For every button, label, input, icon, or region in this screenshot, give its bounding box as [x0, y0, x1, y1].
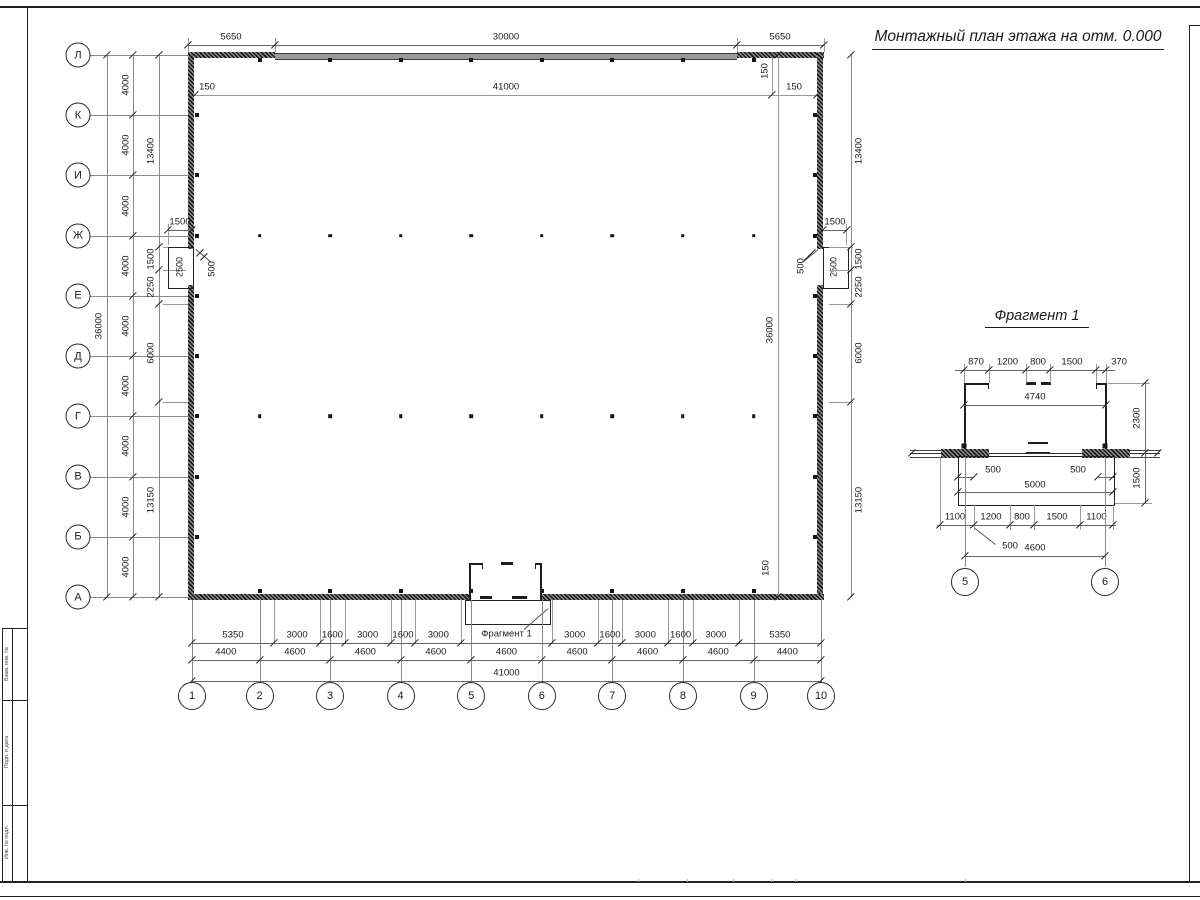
dim-label: 41000: [493, 82, 519, 92]
dim-label: 3000: [287, 630, 308, 640]
dim-label: 4000: [121, 135, 131, 156]
axis-circle: Д: [66, 344, 91, 369]
line: [482, 563, 483, 569]
line: [0, 6, 1200, 8]
dim-label: 2250: [854, 276, 864, 297]
line: [542, 600, 543, 682]
line: [1096, 383, 1097, 389]
dim-label: 1600: [599, 630, 620, 640]
dim-label: 4000: [121, 315, 131, 336]
line: [1010, 505, 1011, 530]
line: [0, 881, 1200, 883]
dim-label: 1500: [1046, 512, 1067, 522]
column-mark: [611, 415, 615, 419]
line: [133, 55, 134, 597]
dim-label: 4000: [121, 376, 131, 397]
dim-label: 1500: [1132, 467, 1142, 488]
column-mark: [258, 234, 262, 238]
axis-circle: К: [66, 103, 91, 128]
dim-label: 1600: [392, 630, 413, 640]
column-mark: [540, 234, 544, 238]
column-mark: [195, 173, 199, 177]
line: [401, 600, 402, 682]
top-wall-mid: [275, 53, 737, 60]
dim-label: 4000: [121, 436, 131, 457]
stamp-cell-label: Подп. и дата: [4, 736, 10, 768]
column-mark: [752, 58, 756, 62]
axis-circle: 4: [387, 682, 415, 710]
line: [964, 405, 1107, 406]
line: [89, 356, 188, 357]
dim-label: 5650: [220, 32, 241, 42]
dim-label: 1600: [670, 630, 691, 640]
column-mark: [813, 414, 817, 418]
line: [345, 600, 346, 644]
column-mark: [469, 415, 473, 419]
line: [2, 628, 27, 629]
dim-label: 3000: [564, 630, 585, 640]
dashed-mark: [1028, 442, 1048, 444]
line: [2, 805, 27, 806]
line: [1189, 25, 1200, 26]
column-mark: [540, 58, 544, 62]
column-mark: [813, 113, 817, 117]
dim-label: 4600: [1024, 543, 1045, 553]
column-mark: [195, 113, 199, 117]
dim-label: 500: [796, 258, 806, 274]
dim-label: 4600: [567, 647, 588, 657]
dim-label: 41000: [493, 668, 519, 678]
column-mark: [681, 58, 685, 62]
dashed-mark: [1026, 382, 1036, 385]
line: [687, 879, 688, 882]
column-mark: [258, 58, 262, 62]
line: [683, 600, 684, 682]
axis-circle: 7: [598, 682, 626, 710]
line: [795, 879, 796, 882]
line: [1145, 383, 1146, 503]
dim-label: 150: [760, 63, 770, 79]
dim-label: 1200: [980, 512, 1001, 522]
dim-label: 2250: [146, 276, 156, 297]
column-mark: [328, 415, 332, 419]
fragment-title: Фрагмент 1: [985, 308, 1089, 328]
axis-circle: 3: [316, 682, 344, 710]
dim-label: 13150: [854, 486, 864, 512]
axis-circle: 5: [457, 682, 485, 710]
column-mark: [681, 415, 685, 419]
dim-label: 13150: [146, 486, 156, 512]
line: [330, 600, 331, 682]
column-mark: [813, 294, 817, 298]
dim-label: 4600: [355, 647, 376, 657]
column-mark: [399, 415, 403, 419]
dim-label: 1500: [169, 217, 190, 227]
dim-label: 1600: [322, 630, 343, 640]
line: [535, 563, 536, 569]
dashed-mark: [501, 562, 513, 565]
dim-label: 1200: [997, 357, 1018, 367]
column-mark: [195, 294, 199, 298]
axis-circle: 9: [740, 682, 768, 710]
dim-label: 800: [1014, 512, 1030, 522]
line: [1096, 383, 1107, 385]
dim-label: 1100: [1086, 512, 1106, 522]
line: [1105, 383, 1107, 453]
line: [778, 55, 779, 597]
dim-label: 500: [1002, 541, 1018, 551]
dim-label: 150: [786, 82, 802, 92]
line: [638, 879, 639, 882]
dim-label: 4600: [496, 647, 517, 657]
line: [851, 55, 852, 597]
dim-label: 13400: [854, 138, 864, 164]
dim-tick: [847, 593, 855, 601]
line: [937, 525, 1116, 526]
column-mark: [961, 444, 966, 449]
column-mark: [399, 234, 403, 238]
axis-circle: 8: [669, 682, 697, 710]
line: [733, 879, 734, 882]
line: [163, 304, 189, 305]
line: [965, 556, 1105, 557]
dim-label: 870: [968, 357, 984, 367]
line: [195, 95, 817, 96]
line: [2, 700, 27, 701]
column-mark: [1102, 444, 1107, 449]
column-mark: [611, 234, 615, 238]
line: [552, 600, 553, 644]
line: [89, 236, 188, 237]
column-mark: [681, 234, 685, 238]
dim-label: 30000: [493, 32, 519, 42]
column-mark: [399, 58, 403, 62]
axis-circle: А: [66, 585, 91, 610]
line: [188, 45, 824, 46]
line: [693, 600, 694, 644]
dim-label: 2500: [176, 257, 185, 277]
line: [0, 896, 1200, 898]
dim-label: 2500: [830, 257, 839, 277]
stamp-cell-label: Инв. № подл.: [4, 825, 10, 859]
column-mark: [469, 234, 473, 238]
dim-label: 3000: [357, 630, 378, 640]
dim-label: 4000: [121, 496, 131, 517]
line: [965, 879, 966, 882]
axis-circle: В: [66, 464, 91, 489]
dim-label: 6000: [854, 342, 864, 363]
drawing-sheet: Монтажный план этажа на отм. 0.000 Фрагм…: [0, 0, 1200, 900]
dim-label: 4400: [777, 647, 798, 657]
dim-label: 500: [985, 465, 1001, 475]
column-mark: [328, 58, 332, 62]
column-mark: [752, 589, 756, 593]
dim-label: 4000: [121, 195, 131, 216]
line: [955, 370, 1115, 371]
dim-label: 3000: [428, 630, 449, 640]
line: [1105, 457, 1106, 567]
line: [772, 58, 773, 95]
dim-label: 150: [199, 82, 215, 92]
dashed-mark: [512, 596, 527, 599]
line: [107, 55, 108, 597]
line: [274, 600, 275, 644]
column-mark: [258, 415, 262, 419]
dim-label: 1500: [146, 248, 156, 269]
dim-label: 6000: [146, 342, 156, 363]
line: [771, 879, 772, 882]
dim-label: 1500: [854, 248, 864, 269]
column-mark: [752, 234, 756, 238]
line: [89, 537, 188, 538]
dim-label: 5350: [222, 630, 243, 640]
dim-label: 4000: [121, 75, 131, 96]
dim-label: 4740: [1024, 392, 1045, 402]
column-mark: [195, 535, 199, 539]
axis-circle: И: [66, 163, 91, 188]
column-mark: [258, 589, 262, 593]
line: [89, 416, 188, 417]
line: [12, 628, 13, 881]
dim-label: 4000: [121, 255, 131, 276]
column-mark: [813, 475, 817, 479]
line: [1189, 25, 1190, 882]
leader-line: [975, 528, 996, 545]
column-mark: [195, 414, 199, 418]
dashed-mark: [480, 596, 492, 599]
wall-hatch: [188, 52, 194, 600]
dim-label: 2300: [1132, 407, 1142, 428]
line: [540, 563, 542, 600]
axis-circle: 6: [528, 682, 556, 710]
line: [89, 477, 188, 478]
line: [1115, 503, 1152, 504]
line: [965, 457, 966, 567]
line: [192, 643, 821, 644]
line: [192, 660, 821, 661]
line: [958, 492, 1113, 493]
line: [469, 563, 471, 600]
wall-hatch: [188, 52, 275, 58]
stamp-cell-label: Взам. инв. №: [4, 647, 10, 681]
dim-label: 150: [761, 560, 771, 576]
line: [1034, 505, 1035, 530]
line: [27, 6, 28, 882]
line: [964, 383, 990, 385]
dim-label: 1100: [945, 512, 965, 522]
column-mark: [399, 589, 403, 593]
line: [260, 600, 261, 682]
line: [415, 600, 416, 644]
axis-circle: Г: [66, 404, 91, 429]
line: [89, 296, 188, 297]
column-mark: [610, 58, 614, 62]
dim-label: 800: [1030, 357, 1046, 367]
line: [622, 600, 623, 644]
column-mark: [752, 415, 756, 419]
line: [1080, 505, 1081, 530]
line: [940, 457, 941, 530]
dim-label: 4400: [215, 647, 236, 657]
dim-label: 4600: [284, 647, 305, 657]
column-mark: [813, 535, 817, 539]
fragment-ref-label: Фрагмент 1: [481, 629, 532, 639]
line: [612, 600, 613, 682]
axis-circle: 6: [1091, 568, 1119, 596]
column-mark: [195, 475, 199, 479]
axis-circle: 1: [178, 682, 206, 710]
dim-label: 4600: [425, 647, 446, 657]
axis-circle: 5: [951, 568, 979, 596]
outline-rect: [465, 600, 551, 625]
line: [461, 600, 462, 644]
axis-circle: 2: [246, 682, 274, 710]
dim-label: 36000: [94, 313, 104, 339]
line: [739, 600, 740, 644]
dim-label: 13400: [146, 138, 156, 164]
dim-label: 4600: [708, 647, 729, 657]
line: [1113, 504, 1114, 530]
axis-circle: Е: [66, 283, 91, 308]
column-mark: [469, 58, 473, 62]
dim-label: 4600: [637, 647, 658, 657]
line: [846, 224, 847, 245]
dim-label: 370: [1111, 357, 1127, 367]
column-mark: [328, 234, 332, 238]
line: [192, 681, 821, 682]
line: [469, 563, 483, 565]
axis-circle: Л: [66, 43, 91, 68]
dashed-mark: [1041, 382, 1051, 385]
axis-circle: Ж: [66, 223, 91, 248]
page-title: Монтажный план этажа на отм. 0.000: [872, 28, 1164, 50]
line: [754, 600, 755, 682]
column-mark: [681, 589, 685, 593]
dim-label: 5650: [769, 32, 790, 42]
column-mark: [610, 589, 614, 593]
dim-label: 5350: [769, 630, 790, 640]
line: [89, 115, 188, 116]
dim-label: 5000: [1024, 480, 1045, 490]
dim-label: 1500: [1061, 357, 1082, 367]
wall-hatch: [817, 52, 823, 600]
column-mark: [195, 354, 199, 358]
dim-label: 500: [207, 261, 217, 277]
line: [89, 175, 188, 176]
line: [536, 563, 542, 565]
column-mark: [813, 234, 817, 238]
line: [988, 383, 989, 389]
dim-label: 4000: [121, 556, 131, 577]
line: [471, 600, 472, 682]
dim-label: 36000: [765, 317, 775, 343]
line: [2, 628, 3, 881]
column-mark: [813, 354, 817, 358]
column-mark: [813, 173, 817, 177]
dim-label: 3000: [705, 630, 726, 640]
line: [159, 55, 160, 597]
line: [163, 402, 189, 403]
dim-label: 500: [1070, 465, 1086, 475]
column-mark: [195, 234, 199, 238]
dim-label: 3000: [635, 630, 656, 640]
column-mark: [540, 415, 544, 419]
line: [964, 383, 966, 453]
axis-circle: Б: [66, 524, 91, 549]
dim-label: 1500: [824, 217, 845, 227]
axis-circle: 10: [807, 682, 835, 710]
column-mark: [328, 589, 332, 593]
